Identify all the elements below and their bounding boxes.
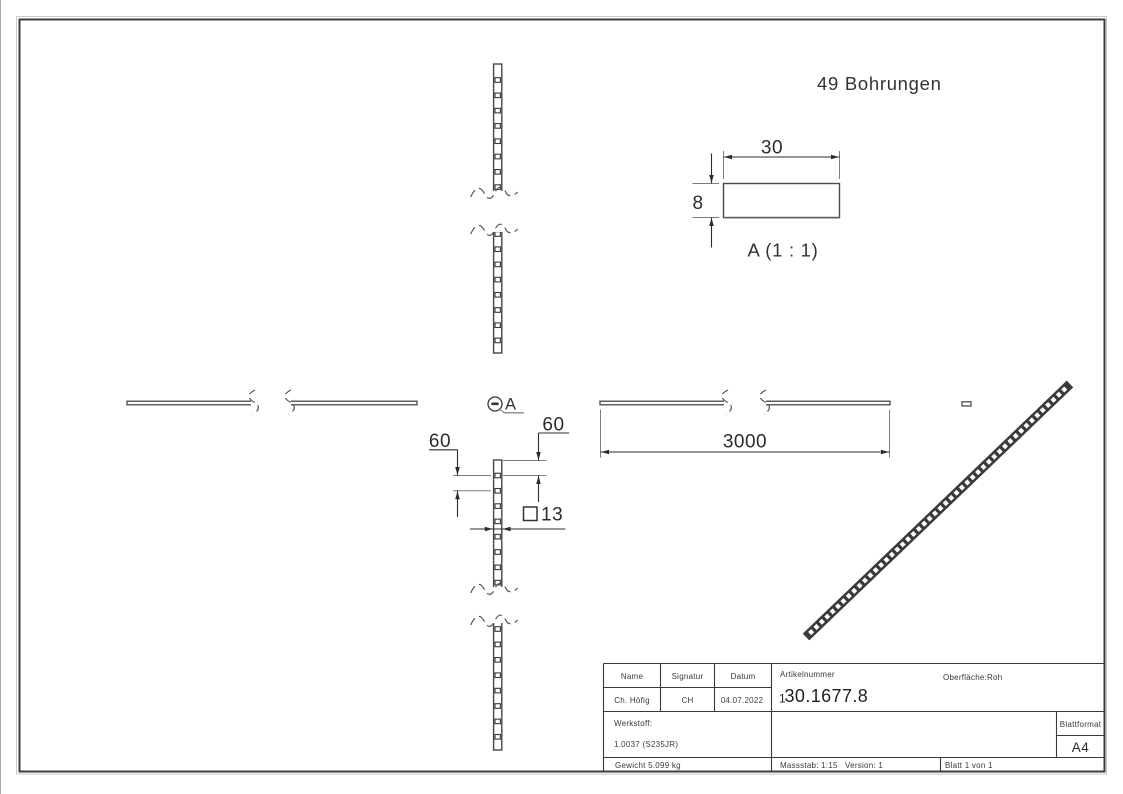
square-hole bbox=[495, 534, 500, 539]
holes-count-note: 49 Bohrungen bbox=[817, 73, 942, 94]
square-hole bbox=[495, 519, 500, 524]
bar-edge-segment bbox=[600, 401, 725, 405]
square-hole bbox=[495, 473, 500, 478]
square-hole bbox=[495, 642, 500, 647]
dimension-8: 8 bbox=[692, 154, 719, 248]
square-hole bbox=[495, 565, 500, 570]
square-hole bbox=[495, 154, 500, 159]
square-hole bbox=[495, 704, 500, 709]
bar-segment bbox=[494, 622, 502, 750]
square-hole bbox=[495, 108, 500, 113]
tb-header-werkstoff: Werkstoff: bbox=[614, 719, 652, 728]
dim-13-text: 13 bbox=[541, 505, 563, 526]
bar-edge-segment bbox=[765, 401, 890, 405]
tb-oberflaeche-value: Roh bbox=[987, 673, 1002, 682]
dim-30-text: 30 bbox=[761, 138, 783, 159]
square-hole bbox=[495, 735, 500, 740]
dimension-60-left: 60 bbox=[429, 431, 491, 517]
square-hole bbox=[495, 673, 500, 678]
tb-artikelnummer-value: 30.1677.8 bbox=[785, 686, 869, 706]
square-hole bbox=[495, 719, 500, 724]
square-hole bbox=[495, 247, 500, 252]
end-view-cross-section bbox=[962, 402, 971, 406]
dim-8-text: 8 bbox=[692, 193, 703, 214]
tb-version: Version: 1 bbox=[845, 761, 883, 770]
square-hole bbox=[495, 139, 500, 144]
tb-name-value: Ch. Höfig bbox=[614, 696, 650, 705]
square-hole bbox=[495, 78, 500, 83]
tb-massstab: Massstab: 1:15 bbox=[780, 761, 838, 770]
dimension-60-right: 60 bbox=[503, 415, 569, 503]
square-hole bbox=[495, 170, 500, 175]
tb-werkstoff-value: 1.0037 (S235JR) bbox=[614, 740, 678, 749]
dimension-square-13: 13 bbox=[470, 505, 566, 532]
square-hole bbox=[495, 277, 500, 282]
square-hole bbox=[495, 323, 500, 328]
tb-datum-value: 04.07.2022 bbox=[721, 696, 764, 705]
tb-signatur-value: CH bbox=[681, 696, 693, 705]
tb-header-artikelnummer: Artikelnummer bbox=[780, 670, 835, 679]
dimension-30: 30 bbox=[724, 138, 840, 180]
detail-view-title: A (1 : 1) bbox=[747, 240, 818, 261]
tb-header-signatur: Signatur bbox=[672, 672, 704, 681]
square-hole bbox=[495, 124, 500, 129]
bar-edge-segment bbox=[290, 401, 417, 405]
iso-bar-body bbox=[806, 384, 1070, 637]
square-hole bbox=[495, 688, 500, 693]
isometric-view-bar bbox=[806, 384, 1070, 637]
cad-drawing-canvas: A 49 Bohrungen 30 8 A (1 : 1) 3000 bbox=[0, 0, 1123, 794]
tb-header-datum: Datum bbox=[731, 672, 756, 681]
tb-gewicht: Gewicht 5.099 kg bbox=[615, 761, 681, 770]
tb-header-oberflaeche: Oberfläche: bbox=[943, 673, 987, 682]
tb-header-blattformat: Blattformat bbox=[1060, 720, 1102, 729]
dimension-3000: 3000 bbox=[601, 410, 890, 458]
tb-header-name: Name bbox=[621, 672, 644, 681]
detail-view-a: 30 8 A (1 : 1) bbox=[692, 138, 840, 261]
square-hole bbox=[495, 293, 500, 298]
square-hole bbox=[495, 550, 500, 555]
bar-edge-segment bbox=[127, 401, 252, 405]
dim-3000-text: 3000 bbox=[723, 432, 767, 453]
tb-blattformat-value: A4 bbox=[1072, 740, 1090, 755]
square-hole bbox=[495, 658, 500, 663]
square-hole bbox=[495, 627, 500, 632]
square-symbol bbox=[524, 507, 538, 521]
square-hole bbox=[495, 262, 500, 267]
title-block: Name Signatur Datum Ch. Höfig CH 04.07.2… bbox=[604, 664, 1105, 772]
square-hole bbox=[495, 93, 500, 98]
detail-callout-a: A bbox=[488, 396, 524, 414]
dim-60-left-text: 60 bbox=[429, 431, 451, 452]
square-hole bbox=[495, 489, 500, 494]
dim-60-right-text: 60 bbox=[542, 415, 564, 436]
detail-callout-letter: A bbox=[505, 396, 517, 414]
drawing-sheet: A 49 Bohrungen 30 8 A (1 : 1) 3000 bbox=[0, 0, 1123, 794]
square-hole bbox=[495, 232, 500, 237]
square-hole bbox=[495, 308, 500, 313]
tb-blatt: Blatt 1 von 1 bbox=[945, 761, 993, 770]
square-hole bbox=[495, 338, 500, 343]
sheet-frame bbox=[1, 0, 1107, 794]
square-hole bbox=[495, 504, 500, 509]
